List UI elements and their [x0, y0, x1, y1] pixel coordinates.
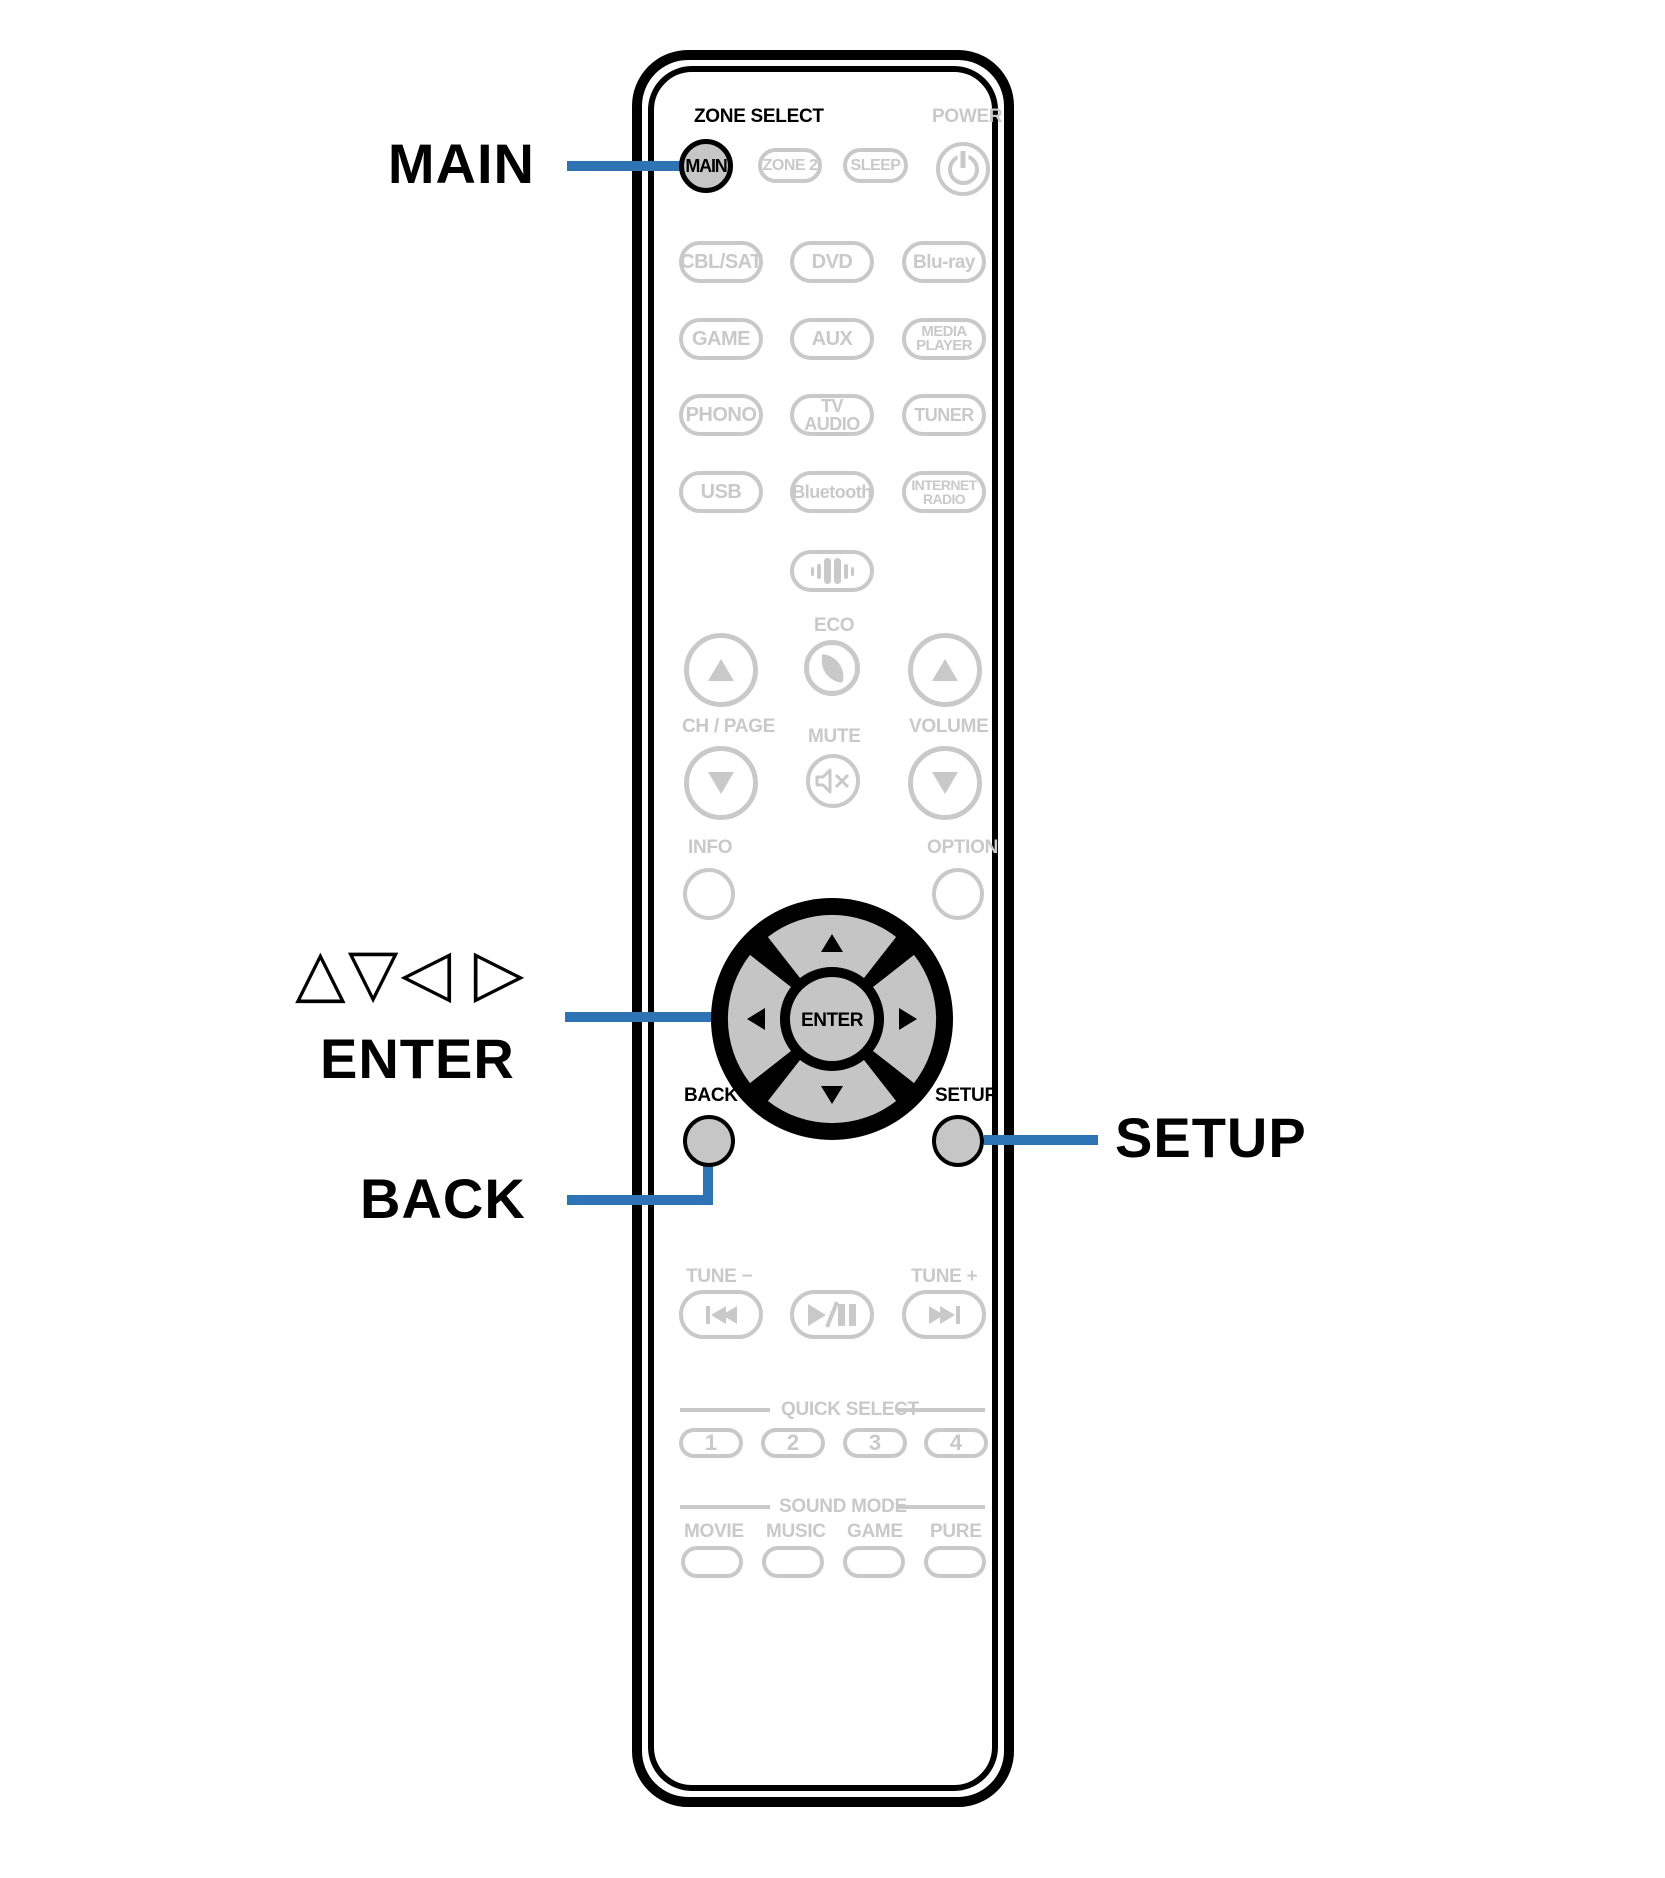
movie-label: MOVIE	[684, 1522, 744, 1541]
down-triangle-icon	[708, 772, 734, 794]
pure-label: PURE	[930, 1522, 982, 1541]
mute-button[interactable]	[806, 754, 860, 808]
source-aux-button[interactable]: AUX	[790, 318, 874, 360]
next-track-icon	[929, 1306, 960, 1324]
prev-track-icon	[706, 1306, 737, 1324]
power-label: POWER	[932, 107, 1002, 126]
callout-line-setup	[984, 1135, 1098, 1145]
divider	[680, 1505, 770, 1509]
callout-line-main	[567, 161, 683, 171]
audio-setup-button[interactable]	[790, 550, 874, 592]
game-label: GAME	[847, 1522, 903, 1541]
volume-label: VOLUME	[909, 717, 988, 736]
channel-up-button[interactable]	[684, 633, 758, 707]
mute-label: MUTE	[808, 727, 861, 746]
source-bluetooth-button[interactable]: Bluetooth	[790, 471, 874, 513]
callout-line-back-vertical	[703, 1163, 713, 1205]
mute-icon	[815, 768, 851, 794]
callout-setup: SETUP	[1115, 1108, 1307, 1168]
quick-select-3-button[interactable]: 3	[843, 1428, 907, 1458]
callout-main: MAIN	[330, 134, 535, 194]
down-triangle-icon	[932, 772, 958, 794]
callout-line-cursor-enter	[565, 1012, 713, 1022]
callout-line-back-horizontal	[567, 1195, 713, 1205]
sleep-button[interactable]: SLEEP	[843, 148, 908, 183]
divider	[897, 1408, 985, 1412]
skip-back-button[interactable]	[679, 1290, 763, 1339]
game-button[interactable]	[843, 1546, 905, 1578]
zone-select-label: ZONE SELECT	[694, 107, 824, 126]
source-tuner-button[interactable]: TUNER	[902, 394, 986, 436]
main-zone-button[interactable]: MAIN	[679, 139, 733, 193]
cursor-pad[interactable]: ENTER	[711, 898, 953, 1140]
source-internet-radio-button[interactable]: INTERNET RADIO	[902, 471, 986, 513]
volume-up-button[interactable]	[908, 633, 982, 707]
eco-button[interactable]	[804, 640, 860, 696]
setup-button[interactable]	[932, 1115, 984, 1167]
tune-plus-label: TUNE +	[911, 1267, 977, 1286]
tune-minus-label: TUNE −	[686, 1267, 752, 1286]
source-phono-button[interactable]: PHONO	[679, 394, 763, 436]
zone2-button[interactable]: ZONE 2	[758, 148, 822, 183]
skip-forward-button[interactable]	[902, 1290, 986, 1339]
callout-enter: ENTER	[320, 1029, 515, 1089]
music-button[interactable]	[762, 1546, 824, 1578]
up-triangle-icon	[708, 659, 734, 681]
play-pause-button[interactable]	[790, 1290, 874, 1339]
source-dvd-button[interactable]: DVD	[790, 241, 874, 283]
play-pause-icon	[808, 1301, 856, 1328]
channel-down-button[interactable]	[684, 746, 758, 820]
power-button[interactable]	[936, 142, 990, 196]
option-label: OPTION	[927, 838, 998, 857]
source-tv-audio-button[interactable]: TV AUDIO	[790, 394, 874, 436]
eco-label: ECO	[814, 616, 854, 635]
source-usb-button[interactable]: USB	[679, 471, 763, 513]
volume-down-button[interactable]	[908, 746, 982, 820]
leaf-icon	[818, 654, 847, 683]
quick-select-4-button[interactable]: 4	[924, 1428, 988, 1458]
sound-bars-icon	[811, 558, 854, 584]
source-bluray-button[interactable]: Blu-ray	[902, 241, 986, 283]
pure-button[interactable]	[924, 1546, 986, 1578]
enter-button-label: ENTER	[801, 1010, 864, 1031]
quick-select-2-button[interactable]: 2	[761, 1428, 825, 1458]
main-button-label: MAIN	[685, 156, 726, 177]
source-game-button[interactable]: GAME	[679, 318, 763, 360]
callout-back: BACK	[360, 1169, 526, 1229]
movie-button[interactable]	[681, 1546, 743, 1578]
sound-mode-label: SOUND MODE	[779, 1497, 907, 1516]
divider	[897, 1505, 985, 1509]
source-media-player-button[interactable]: MEDIA PLAYER	[902, 318, 986, 360]
divider	[680, 1408, 770, 1412]
back-button[interactable]	[683, 1115, 735, 1167]
manual-illustration: ZONE SELECT POWER ZONE 2 SLEEP CBL/SAT D…	[0, 0, 1665, 1878]
callout-cursor-triangles: △▽◁ ▷	[295, 937, 526, 1007]
music-label: MUSIC	[766, 1522, 826, 1541]
source-cbl-sat-button[interactable]: CBL/SAT	[679, 241, 763, 283]
quick-select-1-button[interactable]: 1	[679, 1428, 743, 1458]
ch-page-label: CH / PAGE	[682, 717, 775, 736]
power-icon	[948, 154, 979, 185]
info-label: INFO	[688, 838, 732, 857]
up-triangle-icon	[932, 659, 958, 681]
